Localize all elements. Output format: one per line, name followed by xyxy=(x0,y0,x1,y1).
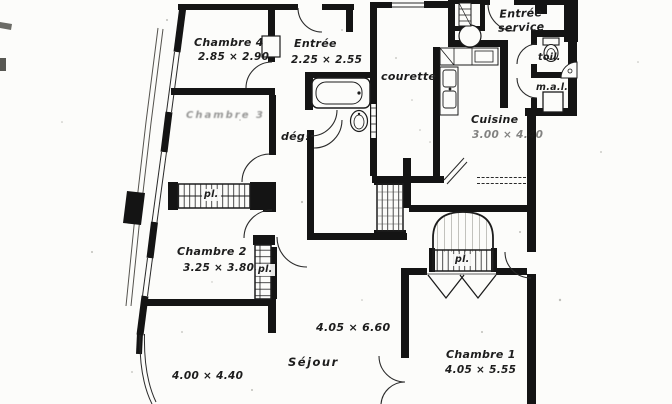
washbasin-icon xyxy=(351,111,368,132)
duct-shaft xyxy=(377,184,403,231)
placard-alcove-label: pl. xyxy=(453,254,472,266)
chambre1-dims: 4.05 × 5.55 xyxy=(445,364,516,377)
placard-long-label: pl. xyxy=(202,189,221,201)
cuisine-label: Cuisine xyxy=(471,113,518,127)
balcony-edge xyxy=(123,28,163,306)
mal-door-arc xyxy=(517,78,537,98)
chambre4-door-arc xyxy=(246,62,272,88)
placard-chambre2-label: pl. xyxy=(256,264,275,276)
chambre3-door-arc xyxy=(242,154,270,182)
washing-machine-icon xyxy=(543,92,563,112)
wc-door-arc xyxy=(314,120,342,148)
margin-marks xyxy=(0,22,12,71)
sejour-dims-left: 4.00 × 4.40 xyxy=(172,370,243,383)
water-heater-icon xyxy=(459,25,481,47)
degagement-label: dég! xyxy=(281,130,310,144)
sejour-dims-main: 4.05 × 6.60 xyxy=(316,321,390,335)
chambre3-label: Chambre 3 xyxy=(186,110,265,123)
courette-window xyxy=(371,104,376,138)
bathtub-icon xyxy=(312,78,370,108)
kitchen-counter-icon xyxy=(440,48,498,65)
chambre4-label: Chambre 4 xyxy=(194,36,264,50)
floorplan-page: Chambre 4 2.85 × 2.90 Entrée 2.25 × 2.55… xyxy=(0,0,672,404)
corner-sink-icon xyxy=(561,62,577,78)
sejour-label: Séjour xyxy=(288,355,339,369)
chambre2-door-arc xyxy=(244,210,272,238)
chambre1-label: Chambre 1 xyxy=(446,348,516,362)
cuisine-dims: 3.00 × 4.40 xyxy=(472,129,543,142)
toil-label: toil. xyxy=(538,52,561,64)
french-doors xyxy=(379,356,405,404)
courette-label: courette xyxy=(381,70,436,84)
chambre2-label: Chambre 2 xyxy=(177,245,247,259)
toil-door-arc xyxy=(517,44,537,64)
entree-label: Entrée xyxy=(294,37,337,51)
duct-fixture-icon xyxy=(459,3,471,26)
mal-label: m.a.l. xyxy=(536,82,568,94)
bath-door-arc xyxy=(311,110,337,136)
kitchen-sink-icon xyxy=(440,67,458,115)
facade-windows xyxy=(140,52,180,404)
chambre2-dims: 3.25 × 3.80 xyxy=(183,262,254,275)
chambre4-dims: 2.85 × 2.90 xyxy=(198,51,269,64)
entrance-door-arc xyxy=(298,8,322,32)
entree-service-label: Entrée service xyxy=(486,6,557,36)
entree-dims: 2.25 × 2.55 xyxy=(291,54,362,67)
bifold-doors xyxy=(428,275,496,298)
degagement-door-arc xyxy=(277,237,307,267)
